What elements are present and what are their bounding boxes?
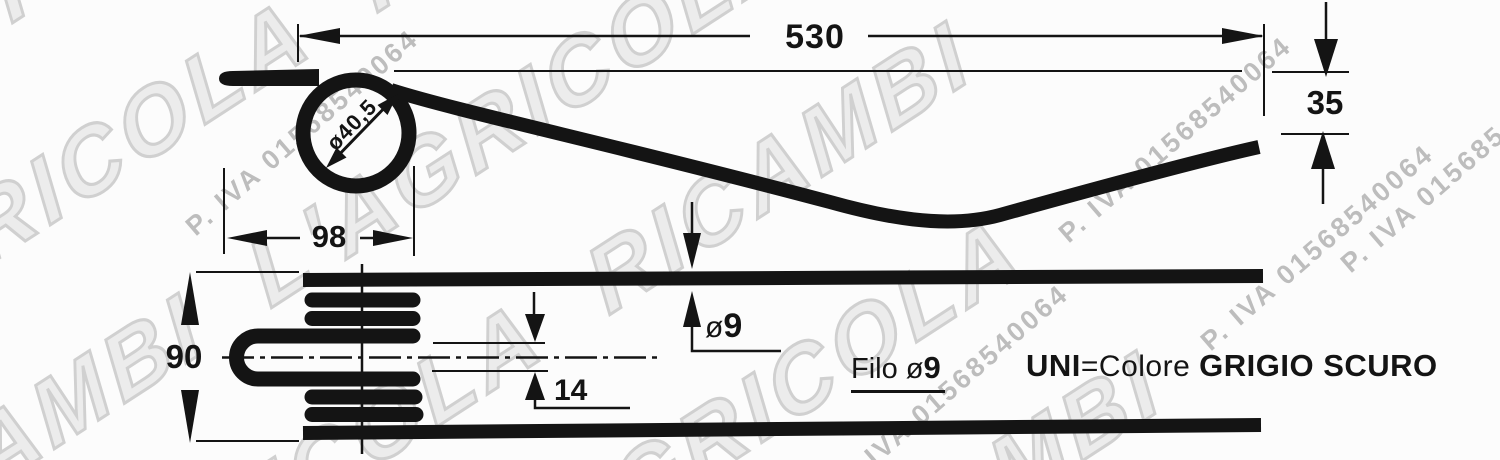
wire-diameter-value: 9 — [723, 307, 742, 345]
standard-code: UNI — [1026, 348, 1081, 383]
color-note: UNI=Colore GRIGIO SCURO — [1026, 350, 1438, 382]
spring-wire — [391, 90, 1259, 221]
arrowhead-down — [181, 390, 199, 443]
arrowhead-up — [181, 272, 199, 325]
arrowhead-up — [683, 291, 701, 327]
tine-drawing — [0, 0, 1500, 460]
diameter-symbol: ø — [705, 311, 723, 344]
color-value: GRIGIO SCURO — [1199, 348, 1438, 383]
wire-note-value: 9 — [924, 350, 941, 385]
arrowhead-right — [373, 230, 413, 246]
color-note-connector: =Colore — [1081, 350, 1199, 383]
dim-label-wire-diameter: ø9 — [705, 309, 742, 343]
dim-label-overall-length: 530 — [775, 20, 855, 54]
arrowhead-up — [525, 372, 545, 400]
diameter-symbol: ø — [906, 353, 924, 385]
wire-note: Filo ø9 — [851, 352, 945, 393]
dim-label-fork-span: 90 — [156, 340, 212, 373]
dim-label-prong-gap: 14 — [554, 376, 587, 406]
arrowhead-left — [227, 230, 267, 246]
dim-label-coil-width: 98 — [300, 221, 358, 252]
arrowhead-down — [525, 314, 545, 342]
technical-drawing-page: RICAMBIL'AGRICOLARICAMBI L'AGRICOLARICAM… — [0, 0, 1500, 460]
dim-label-tip-rise: 35 — [1296, 86, 1354, 119]
wire-note-prefix: Filo — [851, 353, 906, 385]
arrowhead-right — [1222, 28, 1264, 44]
upper-prong — [303, 276, 1263, 280]
arrowhead-down — [683, 233, 701, 269]
lower-prong — [303, 425, 1261, 433]
arrowhead-left — [298, 28, 340, 44]
clamp-end-bar — [219, 69, 319, 86]
arrowhead-up — [1311, 131, 1335, 169]
